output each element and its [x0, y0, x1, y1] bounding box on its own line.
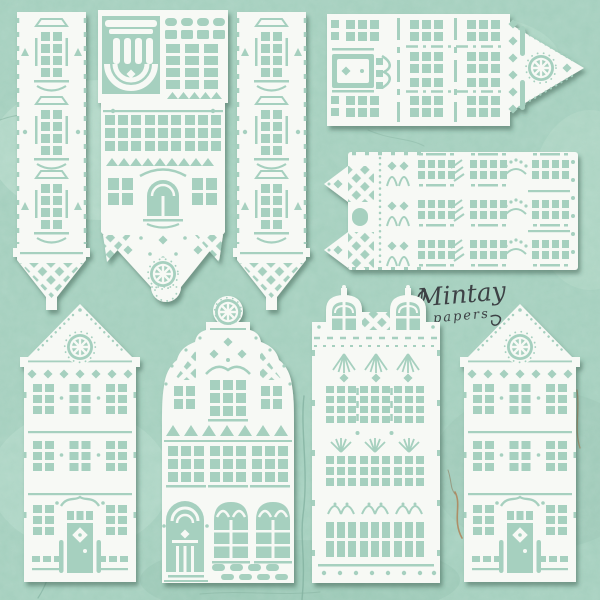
house-sideways-twin-spires [324, 152, 578, 270]
tower-strip-left [13, 12, 90, 310]
chipboard-scene: Mintay papers [0, 0, 600, 600]
arched-door [162, 501, 209, 582]
house-twin-dormers [312, 285, 440, 583]
column-capital [102, 16, 160, 94]
product-photo: Mintay papers [0, 0, 600, 600]
tower-strip-right [233, 12, 310, 310]
